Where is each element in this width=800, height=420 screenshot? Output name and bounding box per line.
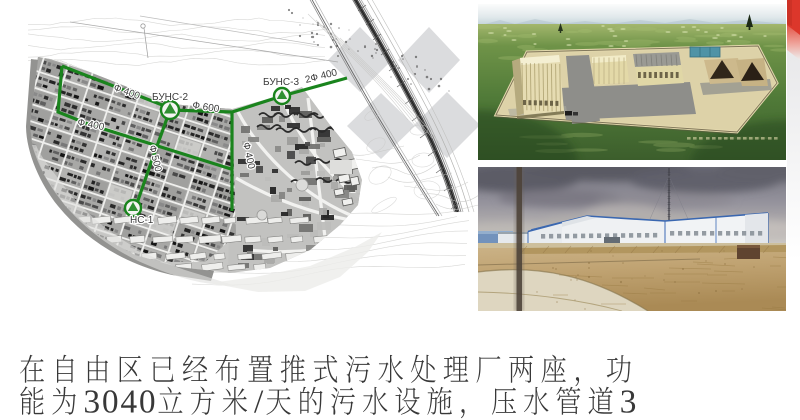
- svg-text:БУНС-3: БУНС-3: [263, 77, 299, 88]
- svg-text:БУНС-2: БУНС-2: [152, 92, 188, 103]
- svg-text:НС-1: НС-1: [130, 215, 154, 226]
